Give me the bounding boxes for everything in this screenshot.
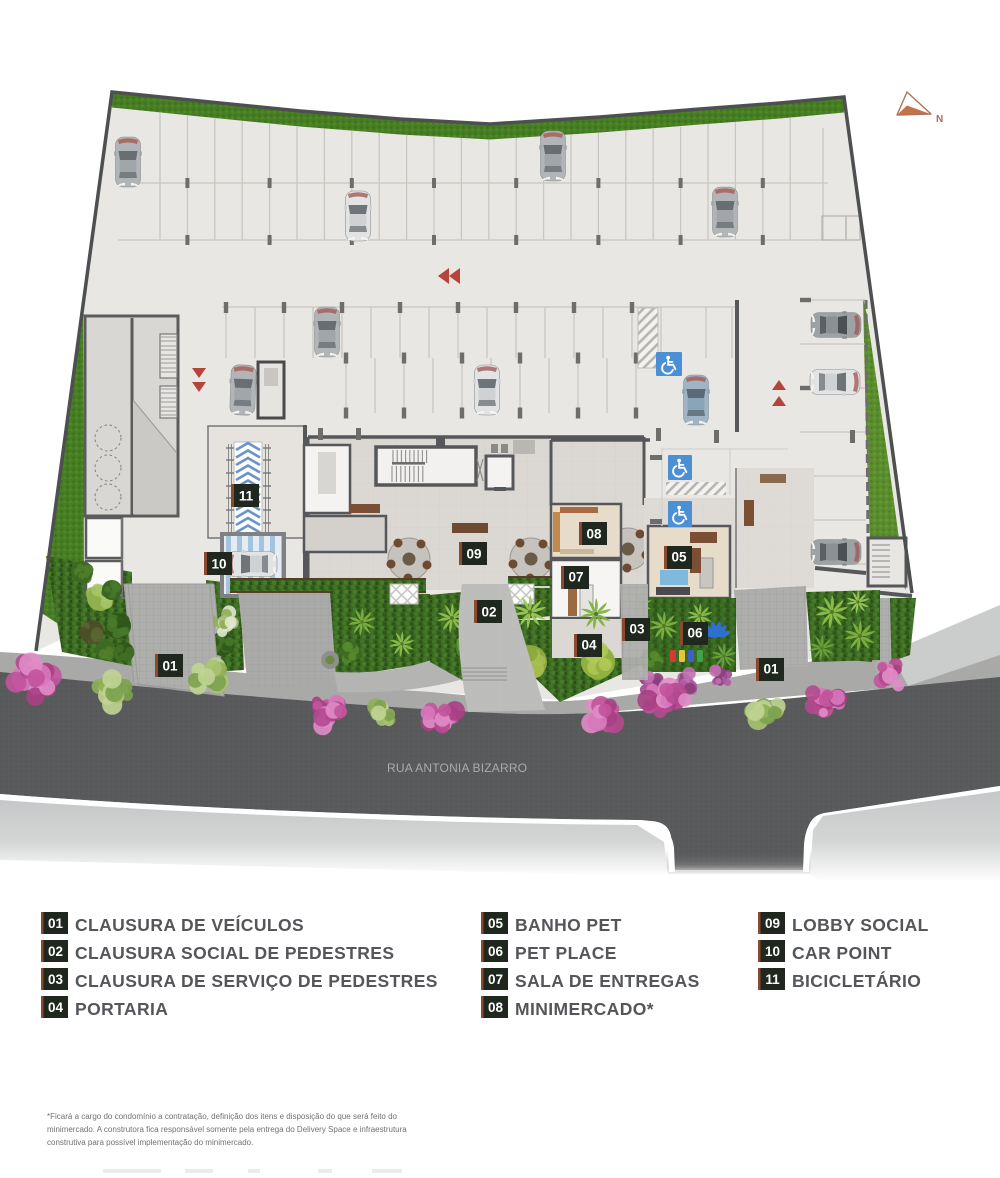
svg-text:11: 11 — [239, 489, 254, 504]
svg-text:01: 01 — [48, 916, 64, 931]
svg-text:*Ficará a cargo do condomínio: *Ficará a cargo do condomínio a contrata… — [47, 1112, 398, 1121]
svg-text:04: 04 — [581, 638, 597, 653]
svg-text:11: 11 — [765, 972, 780, 987]
svg-text:08: 08 — [586, 527, 602, 542]
svg-text:09: 09 — [765, 916, 780, 931]
svg-text:01: 01 — [162, 659, 178, 674]
svg-text:minimercado. A construtora fic: minimercado. A construtora fica responsá… — [47, 1125, 407, 1134]
svg-text:BICICLETÁRIO: BICICLETÁRIO — [792, 970, 921, 991]
svg-text:RUA ANTONIA BIZARRO: RUA ANTONIA BIZARRO — [387, 761, 527, 775]
svg-text:MINIMERCADO*: MINIMERCADO* — [515, 999, 654, 1019]
svg-text:07: 07 — [488, 972, 503, 987]
svg-text:03: 03 — [48, 972, 64, 987]
svg-text:SALA DE ENTREGAS: SALA DE ENTREGAS — [515, 971, 700, 991]
svg-text:N: N — [936, 114, 943, 125]
svg-text:09: 09 — [466, 547, 481, 562]
svg-text:construtiva para possível impl: construtiva para possível implementação … — [47, 1138, 253, 1147]
svg-text:10: 10 — [765, 944, 780, 959]
svg-text:02: 02 — [481, 605, 496, 620]
svg-text:08: 08 — [488, 1000, 504, 1015]
svg-text:06: 06 — [687, 626, 703, 641]
svg-text:03: 03 — [629, 622, 645, 637]
svg-text:CAR POINT: CAR POINT — [792, 943, 892, 963]
svg-text:04: 04 — [48, 1000, 64, 1015]
svg-text:PORTARIA: PORTARIA — [75, 999, 168, 1019]
svg-text:06: 06 — [488, 944, 504, 959]
svg-text:01: 01 — [763, 662, 779, 677]
svg-text:BANHO PET: BANHO PET — [515, 915, 622, 935]
svg-text:CLAUSURA DE VEÍCULOS: CLAUSURA DE VEÍCULOS — [75, 914, 304, 935]
svg-text:05: 05 — [488, 916, 504, 931]
svg-text:05: 05 — [671, 550, 687, 565]
svg-text:LOBBY SOCIAL: LOBBY SOCIAL — [792, 915, 929, 935]
svg-text:07: 07 — [568, 570, 583, 585]
svg-text:10: 10 — [211, 557, 226, 572]
svg-text:CLAUSURA DE SERVIÇO DE PEDESTR: CLAUSURA DE SERVIÇO DE PEDESTRES — [75, 971, 438, 991]
svg-text:02: 02 — [48, 944, 63, 959]
svg-text:PET PLACE: PET PLACE — [515, 943, 617, 963]
svg-text:CLAUSURA SOCIAL DE PEDESTRES: CLAUSURA SOCIAL DE PEDESTRES — [75, 943, 394, 963]
